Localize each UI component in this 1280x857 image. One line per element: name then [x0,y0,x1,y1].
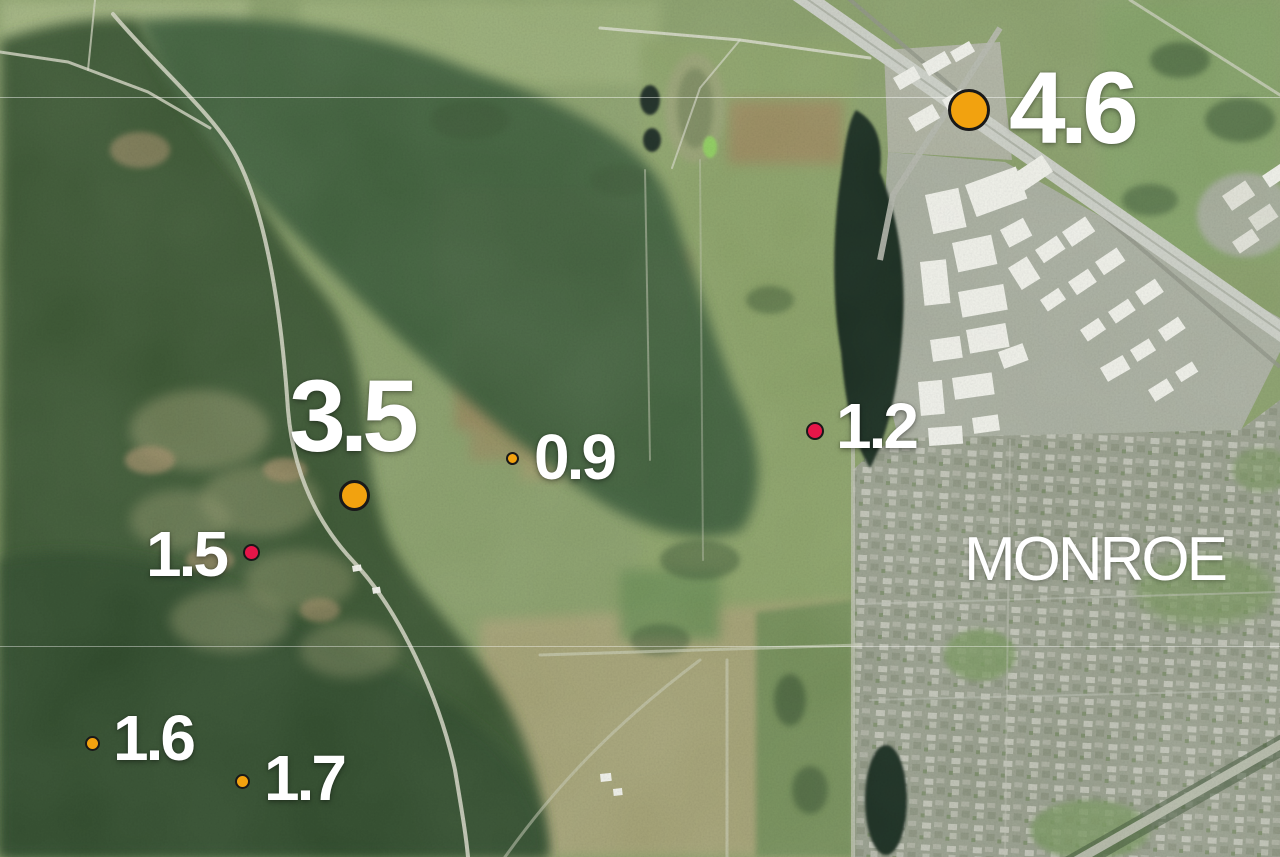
quake-epicenter-dot [506,452,519,465]
quake-magnitude-label: 1.6 [113,706,193,770]
quake-epicenter-dot [339,480,370,511]
earthquake-map: MONROE 4.63.50.91.21.51.61.7 [0,0,1280,857]
quake-magnitude-label: 1.5 [146,522,226,586]
quake-epicenter-dot [243,544,260,561]
quake-epicenter-dot [806,422,824,440]
quake-magnitude-label: 0.9 [534,425,614,489]
quake-epicenter-dot [235,774,250,789]
quake-epicenter-dot [85,736,100,751]
quake-markers-layer: 4.63.50.91.21.51.61.7 [0,0,1280,857]
quake-magnitude-label: 3.5 [289,365,413,467]
quake-epicenter-dot [948,89,990,131]
quake-magnitude-label: 1.2 [836,394,916,458]
quake-magnitude-label: 1.7 [264,746,344,810]
quake-magnitude-label: 4.6 [1009,57,1133,159]
